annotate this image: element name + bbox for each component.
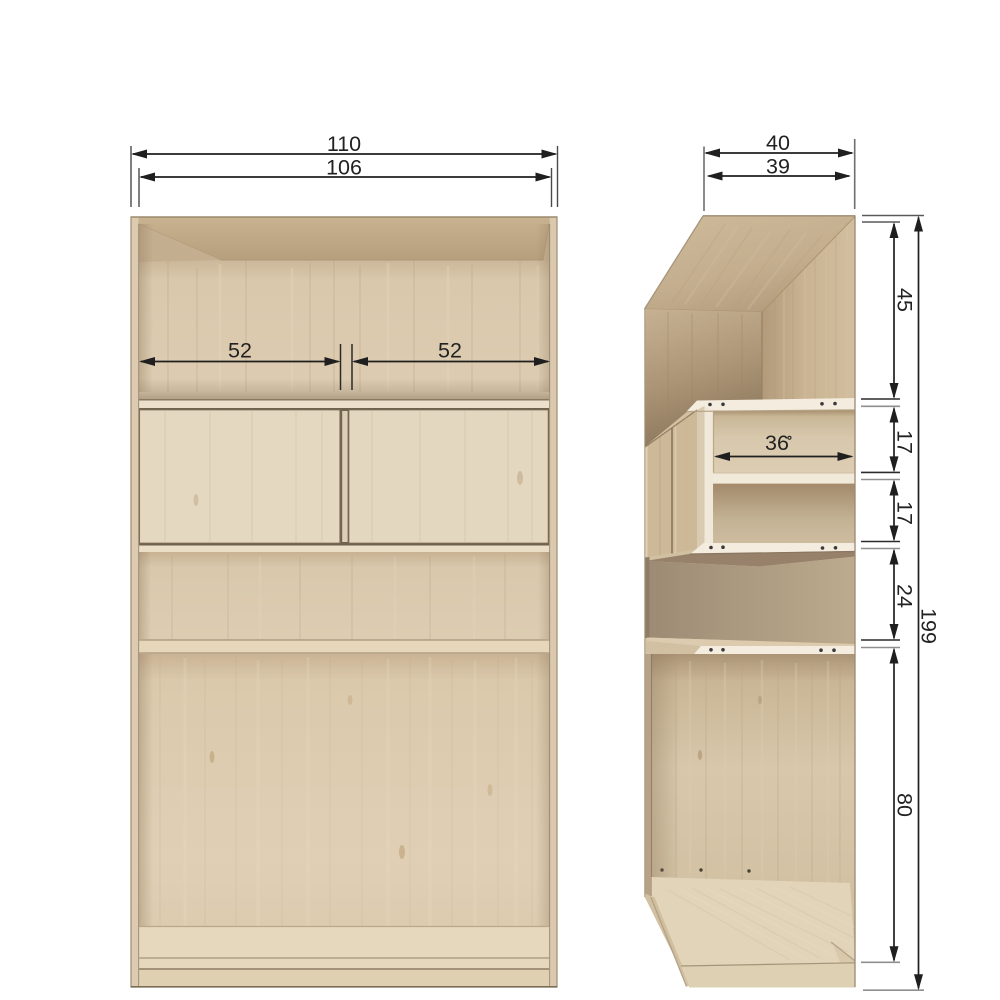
svg-text:110: 110 [327, 132, 361, 156]
svg-text:52: 52 [438, 339, 462, 363]
svg-text:24: 24 [893, 584, 917, 608]
svg-text:199: 199 [917, 608, 941, 644]
svg-text:106: 106 [326, 156, 362, 180]
svg-text:39: 39 [766, 155, 790, 179]
svg-text:17: 17 [893, 430, 917, 454]
svg-text:40: 40 [766, 131, 790, 155]
svg-text:17: 17 [893, 501, 917, 525]
svg-text:80: 80 [893, 793, 917, 817]
svg-text:36: 36 [765, 431, 789, 455]
svg-text:52: 52 [228, 339, 252, 363]
svg-text:45: 45 [893, 288, 917, 312]
